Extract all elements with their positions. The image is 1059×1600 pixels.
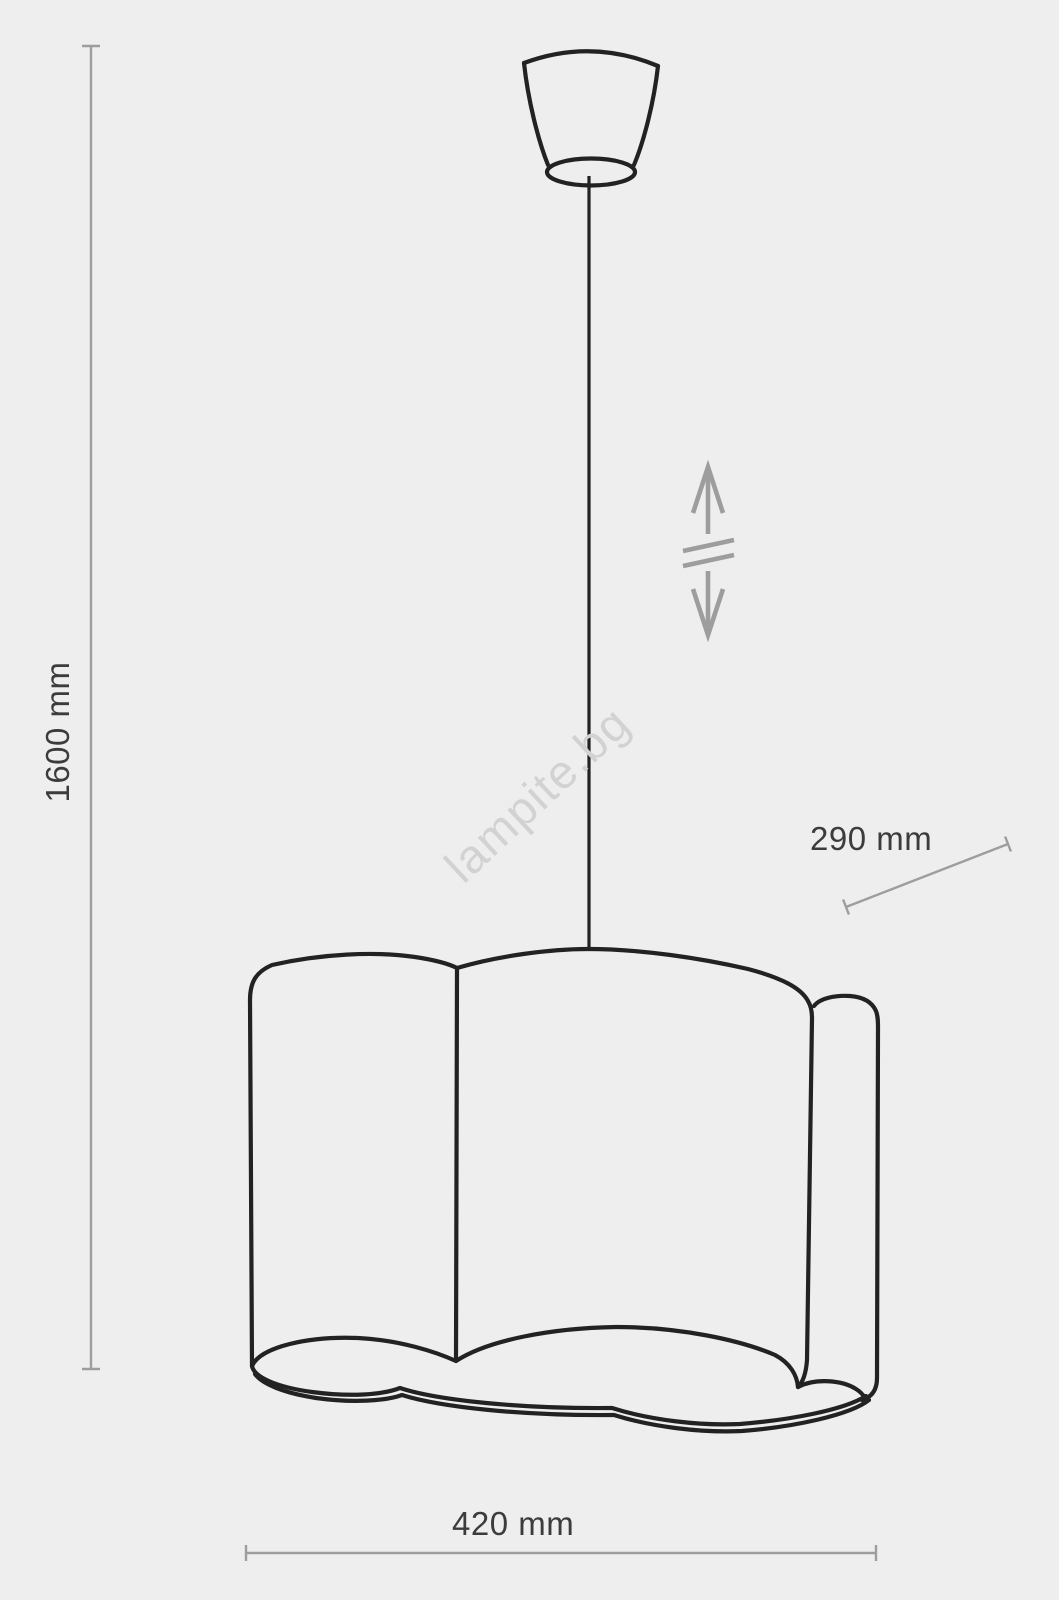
canopy-left-side [524, 63, 548, 165]
canopy-base-ring [547, 159, 635, 186]
diagram-canvas: 1600 mm 290 mm 420 mm lampite.bg [0, 0, 1059, 1600]
canopy-right-side [634, 66, 658, 165]
width-dimension-label: 420 mm [452, 1505, 574, 1543]
canopy-outline [524, 51, 658, 66]
cloud-lampshade [250, 949, 878, 1431]
depth-dimension-label: 290 mm [810, 820, 932, 858]
shade-main-outline [250, 949, 812, 1387]
height-dimension-line [82, 46, 100, 1369]
shade-right-lobe [814, 996, 878, 1400]
height-dimension-label: 1600 mm [39, 661, 77, 802]
width-dimension-line [246, 1545, 876, 1561]
shade-rim-right [798, 1381, 866, 1399]
ceiling-canopy [524, 51, 658, 185]
shade-rim-bottom-inner [255, 1374, 869, 1431]
shade-rim-top [252, 1327, 798, 1387]
shade-seam-line [456, 968, 457, 1361]
height-adjust-icon [683, 467, 734, 635]
